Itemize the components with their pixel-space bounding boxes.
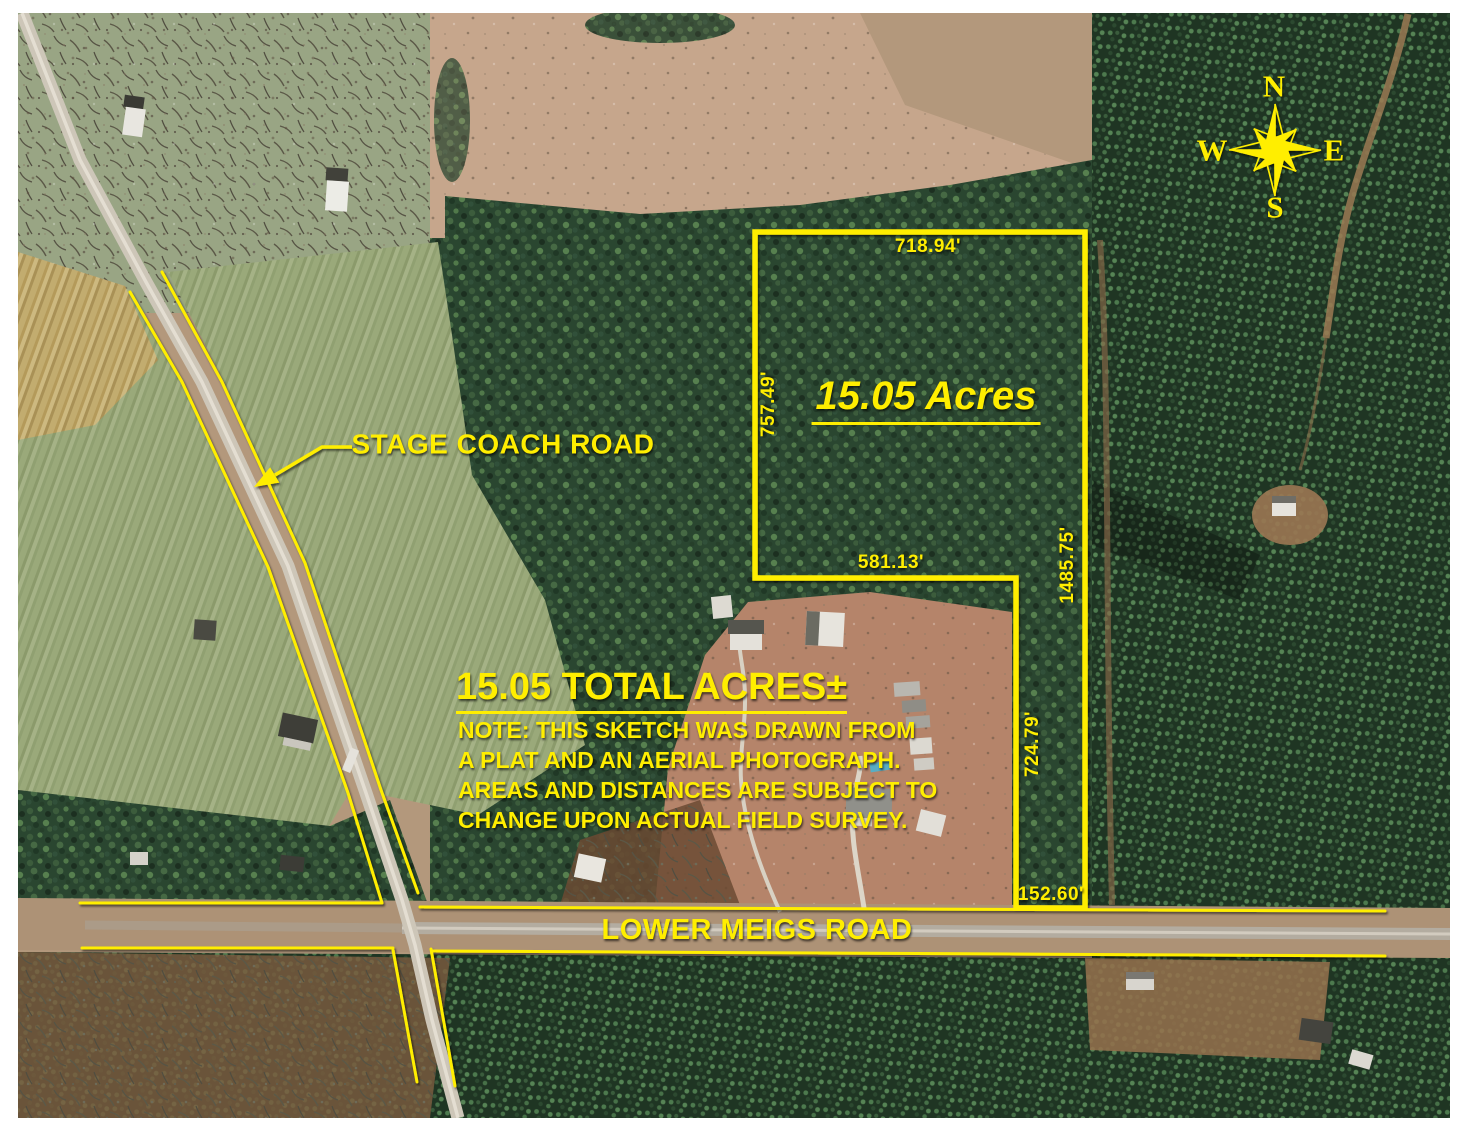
compass-north-label: N	[1263, 71, 1285, 104]
lower-meigs-road-label: LOWER MEIGS ROAD	[602, 915, 913, 945]
dimension-south: 152.60'	[1018, 885, 1084, 905]
dimension-inner-west: 724.79'	[1023, 711, 1043, 777]
dimension-inner-south: 581.13'	[858, 553, 924, 573]
aerial-survey-map: 718.94' 757.49' 15.05 Acres 581.13' 1485…	[0, 0, 1469, 1135]
stage-coach-road-label: STAGE COACH ROAD	[351, 429, 654, 458]
aerial-photo-background	[0, 0, 1469, 1135]
compass-south-label: S	[1266, 192, 1283, 225]
note-line-1: NOTE: THIS SKETCH WAS DRAWN FROM	[458, 718, 915, 742]
note-line-3: AREAS AND DISTANCES ARE SUBJECT TO	[458, 778, 937, 802]
dimension-north: 718.94'	[895, 237, 961, 257]
compass-west-label: W	[1197, 135, 1228, 168]
dimension-west: 757.49'	[759, 371, 779, 437]
dimension-east: 1485.75'	[1058, 526, 1078, 603]
compass-east-label: E	[1324, 135, 1345, 168]
parcel-area-label: 15.05 Acres	[812, 375, 1041, 425]
note-line-4: CHANGE UPON ACTUAL FIELD SURVEY.	[458, 808, 907, 832]
total-acres-heading: 15.05 TOTAL ACRES±	[456, 668, 847, 714]
note-line-2: A PLAT AND AN AERIAL PHOTOGRAPH.	[458, 748, 901, 772]
